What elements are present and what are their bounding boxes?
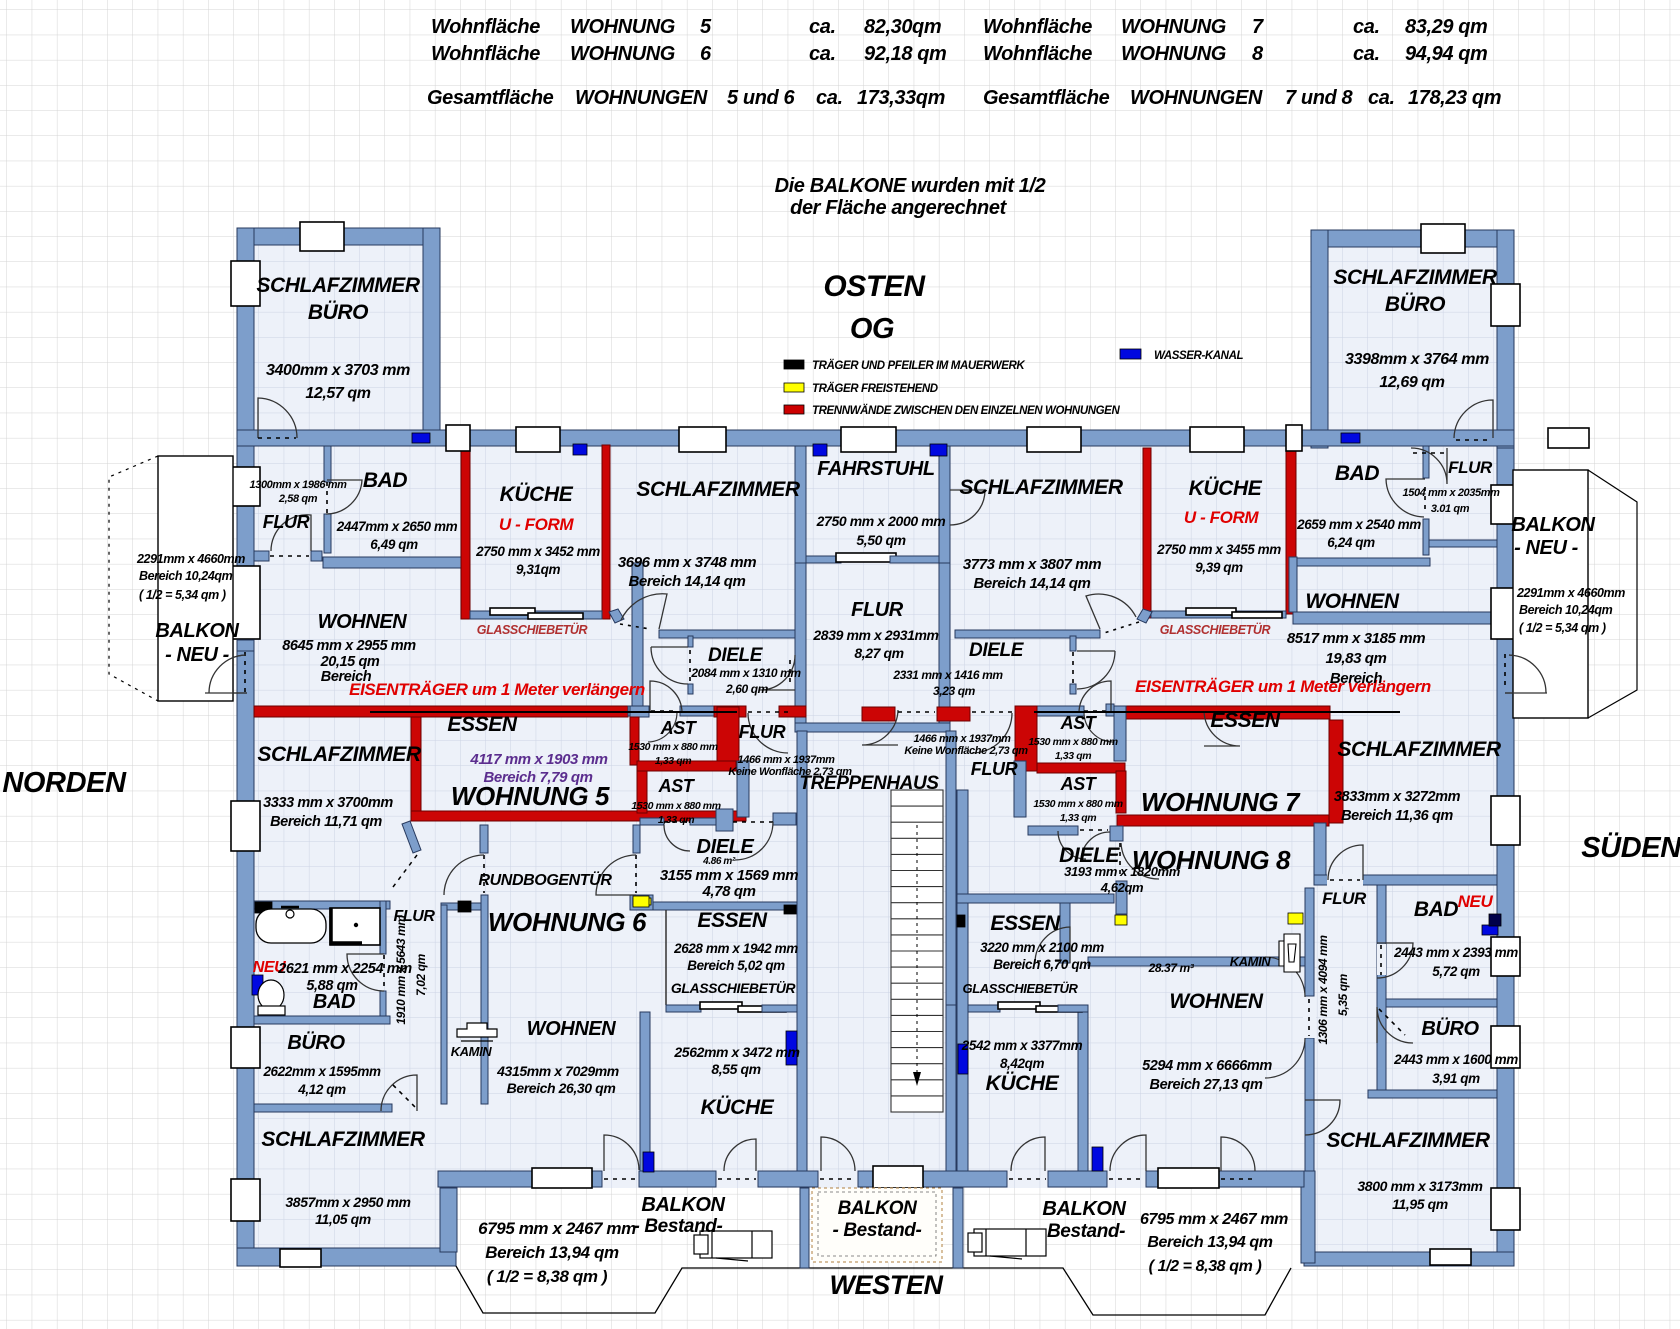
svg-text:WOHNEN: WOHNEN bbox=[1169, 990, 1263, 1013]
svg-text:RUNDBOGENTÜR: RUNDBOGENTÜR bbox=[479, 870, 613, 889]
svg-text:3857mm x 2950 mm: 3857mm x 2950 mm bbox=[285, 1194, 410, 1210]
svg-text:Bereich 5,02 qm: Bereich 5,02 qm bbox=[687, 958, 785, 973]
svg-text:20,15 qm: 20,15 qm bbox=[320, 654, 380, 670]
svg-text:Bereich 26,30 qm: Bereich 26,30 qm bbox=[507, 1080, 616, 1096]
svg-text:FLUR: FLUR bbox=[1448, 458, 1493, 477]
svg-text:AST: AST bbox=[1060, 713, 1098, 733]
svg-text:FAHRSTUHL: FAHRSTUHL bbox=[817, 458, 935, 480]
svg-text:2331 mm x 1416 mm: 2331 mm x 1416 mm bbox=[892, 668, 1003, 682]
svg-text:KÜCHE: KÜCHE bbox=[986, 1072, 1060, 1095]
svg-text:8517 mm x 3185 mm: 8517 mm x 3185 mm bbox=[1287, 630, 1425, 647]
svg-text:GLASSCHIEBETÜR: GLASSCHIEBETÜR bbox=[1160, 622, 1271, 637]
svg-text:3833mm x 3272mm: 3833mm x 3272mm bbox=[1334, 789, 1461, 805]
svg-text:GLASSCHIEBETÜR: GLASSCHIEBETÜR bbox=[477, 622, 588, 637]
svg-text:Bereich 11,36 qm: Bereich 11,36 qm bbox=[1341, 808, 1453, 824]
svg-text:2291mm x 4660mm: 2291mm x 4660mm bbox=[1516, 586, 1625, 600]
svg-text:Bereich 6,70 qm: Bereich 6,70 qm bbox=[993, 957, 1091, 972]
svg-text:2447mm x 2650 mm: 2447mm x 2650 mm bbox=[336, 519, 458, 534]
svg-text:3155 mm x 1569 mm: 3155 mm x 1569 mm bbox=[660, 867, 798, 884]
svg-text:1530 mm x 880 mm: 1530 mm x 880 mm bbox=[628, 741, 717, 753]
svg-text:FLUR: FLUR bbox=[971, 759, 1018, 779]
svg-text:6,24 qm: 6,24 qm bbox=[1327, 535, 1375, 550]
svg-text:11,05 qm: 11,05 qm bbox=[315, 1211, 371, 1227]
svg-text:der Fläche angerechnet: der Fläche angerechnet bbox=[790, 197, 1007, 219]
svg-text:FLUR: FLUR bbox=[851, 599, 904, 621]
svg-text:Bereich 14,14 qm: Bereich 14,14 qm bbox=[629, 573, 746, 590]
svg-text:6,49 qm: 6,49 qm bbox=[370, 537, 418, 552]
svg-text:ESSEN: ESSEN bbox=[990, 912, 1060, 935]
svg-text:BALKON: BALKON bbox=[1042, 1198, 1126, 1220]
svg-text:Bereich 10,24qm: Bereich 10,24qm bbox=[1519, 603, 1613, 617]
svg-text:3400mm x 3703 mm: 3400mm x 3703 mm bbox=[266, 362, 410, 379]
svg-text:2622mm x 1595mm: 2622mm x 1595mm bbox=[262, 1064, 380, 1079]
svg-text:2562mm x 3472 mm: 2562mm x 3472 mm bbox=[673, 1044, 799, 1060]
svg-text:8645 mm x 2955 mm: 8645 mm x 2955 mm bbox=[282, 638, 416, 654]
svg-text:BALKON: BALKON bbox=[155, 620, 239, 642]
svg-text:KÜCHE: KÜCHE bbox=[500, 483, 574, 506]
svg-text:WOHNEN: WOHNEN bbox=[527, 1018, 617, 1040]
svg-text:( 1/2 = 5,34 qm ): ( 1/2 = 5,34 qm ) bbox=[1519, 621, 1606, 635]
svg-text:4,12 qm: 4,12 qm bbox=[297, 1082, 346, 1097]
svg-text:19,83 qm: 19,83 qm bbox=[1325, 650, 1386, 667]
svg-text:6795 mm x 2467 mm: 6795 mm x 2467 mm bbox=[478, 1219, 636, 1238]
svg-text:2,60 qm: 2,60 qm bbox=[725, 682, 769, 696]
svg-text:BAD: BAD bbox=[313, 991, 355, 1013]
svg-text:Bereich 13,94 qm: Bereich 13,94 qm bbox=[485, 1243, 619, 1262]
svg-text:TREPPENHAUS: TREPPENHAUS bbox=[799, 773, 939, 794]
svg-text:5,72 qm: 5,72 qm bbox=[1432, 964, 1480, 979]
svg-text:TRÄGER UND PFEILER IM MAUERWER: TRÄGER UND PFEILER IM MAUERWERK bbox=[812, 359, 1025, 372]
svg-text:1504 mm x 2035mm: 1504 mm x 2035mm bbox=[1403, 487, 1501, 499]
svg-text:TRÄGER FREISTEHEND: TRÄGER FREISTEHEND bbox=[812, 382, 938, 395]
svg-text:4315mm x 7029mm: 4315mm x 7029mm bbox=[496, 1063, 619, 1079]
svg-text:Keine Wonfläche 2,73 qm: Keine Wonfläche 2,73 qm bbox=[904, 745, 1028, 757]
svg-text:1,33 qm: 1,33 qm bbox=[1060, 812, 1096, 824]
svg-text:5294 mm x 6666mm: 5294 mm x 6666mm bbox=[1142, 1058, 1272, 1074]
svg-text:BAD: BAD bbox=[1335, 462, 1380, 485]
svg-text:U - FORM: U - FORM bbox=[499, 515, 574, 534]
svg-text:SCHLAFZIMMER: SCHLAFZIMMER bbox=[1337, 738, 1501, 761]
svg-text:12,69 qm: 12,69 qm bbox=[1379, 374, 1444, 391]
svg-text:1530 mm x 880 mm: 1530 mm x 880 mm bbox=[1033, 798, 1122, 810]
svg-text:OG: OG bbox=[850, 313, 894, 345]
svg-text:2542 mm x 3377mm: 2542 mm x 3377mm bbox=[961, 1038, 1083, 1053]
svg-text:8,55 qm: 8,55 qm bbox=[711, 1061, 760, 1077]
svg-text:KAMIN: KAMIN bbox=[451, 1044, 493, 1059]
svg-text:BALKON: BALKON bbox=[1511, 514, 1595, 536]
svg-text:3696 mm x 3748 mm: 3696 mm x 3748 mm bbox=[618, 554, 756, 571]
svg-text:FLUR: FLUR bbox=[1322, 889, 1367, 908]
svg-text:- Bestand-: - Bestand- bbox=[833, 1220, 922, 1241]
svg-text:28.37 m³: 28.37 m³ bbox=[1148, 961, 1195, 975]
svg-text:4,62qm: 4,62qm bbox=[1100, 880, 1144, 895]
svg-text:2291mm x 4660mm: 2291mm x 4660mm bbox=[136, 552, 245, 566]
svg-text:1466 mm x 1937mm: 1466 mm x 1937mm bbox=[914, 733, 1012, 745]
svg-text:2628 mm x 1942 mm: 2628 mm x 1942 mm bbox=[673, 941, 798, 956]
svg-text:BALKON: BALKON bbox=[641, 1194, 725, 1216]
svg-text:- NEU -: - NEU - bbox=[165, 644, 230, 666]
svg-text:1530 mm x 880 mm: 1530 mm x 880 mm bbox=[631, 800, 720, 812]
svg-text:SCHLAFZIMMER: SCHLAFZIMMER bbox=[256, 274, 420, 297]
svg-text:FLUR: FLUR bbox=[739, 722, 786, 742]
svg-text:1530 mm x 880 mm: 1530 mm x 880 mm bbox=[1028, 736, 1117, 748]
svg-text:Bereich 13,94 qm: Bereich 13,94 qm bbox=[1147, 1234, 1272, 1251]
svg-text:11,95 qm: 11,95 qm bbox=[1392, 1196, 1448, 1212]
svg-text:1306 mm x 4094 mm: 1306 mm x 4094 mm bbox=[1316, 935, 1330, 1045]
svg-text:BAD: BAD bbox=[1414, 898, 1459, 921]
svg-text:SCHLAFZIMMER: SCHLAFZIMMER bbox=[1333, 266, 1497, 289]
svg-text:2443 mm x 2393 mm: 2443 mm x 2393 mm bbox=[1393, 945, 1518, 960]
svg-text:DIELE: DIELE bbox=[969, 640, 1025, 661]
svg-text:3220 mm x 2100 mm: 3220 mm x 2100 mm bbox=[980, 940, 1104, 955]
svg-text:SCHLAFZIMMER: SCHLAFZIMMER bbox=[257, 743, 421, 766]
svg-text:U - FORM: U - FORM bbox=[1184, 508, 1259, 527]
svg-text:SCHLAFZIMMER: SCHLAFZIMMER bbox=[636, 478, 800, 501]
svg-text:Bereich 14,14 qm: Bereich 14,14 qm bbox=[974, 575, 1091, 592]
svg-text:9,39 qm: 9,39 qm bbox=[1195, 560, 1243, 575]
svg-text:Bereich: Bereich bbox=[1330, 670, 1382, 687]
svg-text:3333 mm x 3700mm: 3333 mm x 3700mm bbox=[263, 795, 393, 811]
svg-text:NORDEN: NORDEN bbox=[2, 767, 127, 799]
svg-text:4,78 qm: 4,78 qm bbox=[701, 883, 755, 900]
svg-text:2839 mm x 2931mm: 2839 mm x 2931mm bbox=[812, 627, 938, 643]
svg-text:NEU: NEU bbox=[1458, 892, 1494, 911]
svg-text:3193 mm x 1820mm: 3193 mm x 1820mm bbox=[1064, 864, 1181, 879]
svg-text:BÜRO: BÜRO bbox=[308, 301, 368, 324]
svg-text:FLUR: FLUR bbox=[263, 512, 310, 532]
svg-text:WOHNUNG 5: WOHNUNG 5 bbox=[451, 781, 610, 811]
svg-text:BAD: BAD bbox=[363, 469, 408, 492]
svg-text:1,33 qm: 1,33 qm bbox=[658, 814, 694, 826]
svg-text:5,35 qm: 5,35 qm bbox=[1336, 973, 1350, 1016]
svg-text:WOHNEN: WOHNEN bbox=[1305, 590, 1399, 613]
svg-text:KÜCHE: KÜCHE bbox=[1189, 477, 1263, 500]
svg-text:GLASSCHIEBETÜR: GLASSCHIEBETÜR bbox=[671, 980, 797, 996]
svg-text:SCHLAFZIMMER: SCHLAFZIMMER bbox=[1326, 1129, 1490, 1152]
svg-text:7,02 qm: 7,02 qm bbox=[414, 953, 428, 996]
svg-text:AST: AST bbox=[658, 776, 696, 796]
svg-text:TRENNWÄNDE ZWISCHEN DEN EINZEL: TRENNWÄNDE ZWISCHEN DEN EINZELNEN WOHNUN… bbox=[812, 404, 1120, 417]
svg-text:- Bestand-: - Bestand- bbox=[634, 1216, 723, 1237]
svg-text:1466 mm x 1937mm: 1466 mm x 1937mm bbox=[738, 754, 836, 766]
svg-text:( 1/2 = 5,34 qm ): ( 1/2 = 5,34 qm ) bbox=[139, 588, 226, 602]
svg-text:Bestand-: Bestand- bbox=[1047, 1221, 1125, 1242]
svg-text:BÜRO: BÜRO bbox=[1421, 1017, 1479, 1040]
svg-text:4117 mm x 1903 mm: 4117 mm x 1903 mm bbox=[469, 751, 607, 768]
svg-text:WASSER-KANAL: WASSER-KANAL bbox=[1154, 350, 1243, 362]
svg-text:2084 mm x 1310 mm: 2084 mm x 1310 mm bbox=[690, 666, 801, 680]
svg-text:8,42qm: 8,42qm bbox=[1000, 1056, 1045, 1071]
svg-text:KÜCHE: KÜCHE bbox=[701, 1096, 775, 1119]
svg-text:3398mm x 3764 mm: 3398mm x 3764 mm bbox=[1345, 351, 1489, 368]
svg-text:Die BALKONE wurden mit 1/2: Die BALKONE wurden mit 1/2 bbox=[775, 175, 1046, 197]
svg-text:SCHLAFZIMMER: SCHLAFZIMMER bbox=[959, 476, 1123, 499]
svg-text:1,33 qm: 1,33 qm bbox=[655, 755, 691, 767]
svg-text:12,57 qm: 12,57 qm bbox=[305, 385, 370, 402]
svg-text:2750 mm x 3455 mm: 2750 mm x 3455 mm bbox=[1156, 542, 1281, 557]
svg-text:BALKON: BALKON bbox=[838, 1198, 919, 1219]
svg-text:DIELE: DIELE bbox=[697, 836, 755, 858]
svg-text:4.86 m²: 4.86 m² bbox=[702, 856, 736, 867]
svg-text:( 1/2 = 8,38 qm ): ( 1/2 = 8,38 qm ) bbox=[487, 1267, 608, 1286]
svg-text:OSTEN: OSTEN bbox=[823, 270, 926, 303]
svg-text:Bereich 10,24qm: Bereich 10,24qm bbox=[139, 569, 233, 583]
svg-text:SÜDEN: SÜDEN bbox=[1581, 831, 1680, 864]
svg-text:2443 mm x 1600 mm: 2443 mm x 1600 mm bbox=[1393, 1052, 1518, 1067]
svg-text:EISENTRÄGER um 1 Meter verläng: EISENTRÄGER um 1 Meter verlängern bbox=[1135, 677, 1431, 696]
svg-text:2750 mm x 2000 mm: 2750 mm x 2000 mm bbox=[816, 513, 946, 529]
svg-text:WOHNEN: WOHNEN bbox=[318, 611, 408, 633]
svg-text:9,31qm: 9,31qm bbox=[516, 562, 561, 577]
svg-text:2,58 qm: 2,58 qm bbox=[278, 493, 318, 505]
svg-text:WOHNUNG 7: WOHNUNG 7 bbox=[1141, 787, 1301, 817]
svg-text:BÜRO: BÜRO bbox=[287, 1031, 345, 1054]
svg-text:GLASSCHIEBETÜR: GLASSCHIEBETÜR bbox=[962, 981, 1078, 996]
svg-text:WESTEN: WESTEN bbox=[829, 1270, 943, 1300]
svg-text:EISENTRÄGER um 1 Meter verläng: EISENTRÄGER um 1 Meter verlängern bbox=[349, 680, 645, 699]
svg-text:3773 mm x 3807 mm: 3773 mm x 3807 mm bbox=[963, 556, 1101, 573]
svg-text:Bereich 11,71 qm: Bereich 11,71 qm bbox=[270, 814, 382, 830]
svg-text:DIELE: DIELE bbox=[708, 645, 764, 666]
svg-text:3,23 qm: 3,23 qm bbox=[933, 684, 976, 698]
svg-text:WOHNUNG 6: WOHNUNG 6 bbox=[488, 907, 647, 937]
svg-text:5,50 qm: 5,50 qm bbox=[856, 532, 905, 548]
svg-text:KAMIN: KAMIN bbox=[1230, 954, 1272, 969]
svg-text:3,91 qm: 3,91 qm bbox=[1432, 1071, 1480, 1086]
svg-text:2621 mm x 2254 mm: 2621 mm x 2254 mm bbox=[277, 961, 412, 977]
svg-text:- NEU -: - NEU - bbox=[1514, 537, 1579, 559]
svg-text:8,27 qm: 8,27 qm bbox=[854, 645, 903, 661]
svg-text:1300mm x 1986 mm: 1300mm x 1986 mm bbox=[250, 479, 348, 491]
svg-text:BÜRO: BÜRO bbox=[1385, 293, 1445, 316]
svg-text:( 1/2 = 8,38 qm ): ( 1/2 = 8,38 qm ) bbox=[1149, 1258, 1262, 1275]
svg-text:1,33 qm: 1,33 qm bbox=[1055, 750, 1091, 762]
svg-text:AST: AST bbox=[660, 718, 698, 738]
svg-text:ESSEN: ESSEN bbox=[447, 713, 517, 736]
svg-text:3800 mm x 3173mm: 3800 mm x 3173mm bbox=[1357, 1178, 1482, 1194]
svg-text:3.01 qm: 3.01 qm bbox=[1431, 503, 1470, 515]
svg-text:6795 mm x 2467 mm: 6795 mm x 2467 mm bbox=[1140, 1211, 1288, 1228]
svg-text:ESSEN: ESSEN bbox=[697, 909, 767, 932]
svg-text:2659 mm x 2540 mm: 2659 mm x 2540 mm bbox=[1296, 517, 1421, 532]
svg-text:AST: AST bbox=[1060, 774, 1098, 794]
svg-text:2750 mm x 3452 mm: 2750 mm x 3452 mm bbox=[475, 544, 600, 559]
svg-text:Bereich 27,13 qm: Bereich 27,13 qm bbox=[1150, 1077, 1263, 1093]
svg-text:SCHLAFZIMMER: SCHLAFZIMMER bbox=[261, 1128, 425, 1151]
